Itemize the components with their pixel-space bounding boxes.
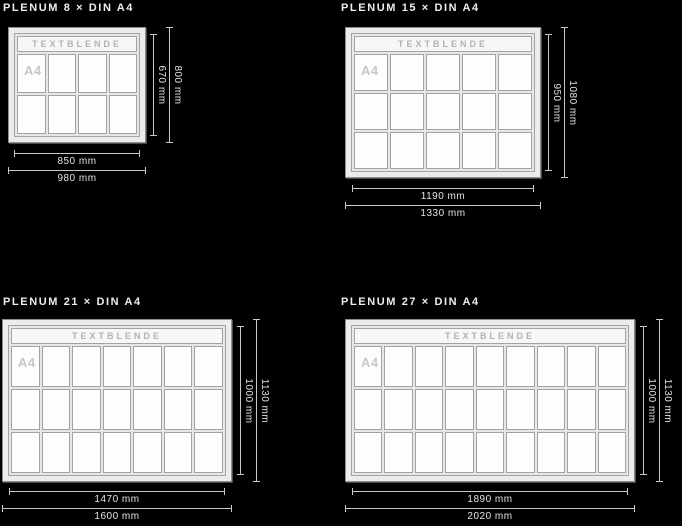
dimension-line-visible-height: 950 mm bbox=[548, 34, 549, 171]
a4-cell bbox=[354, 132, 388, 169]
a4-label: A4 bbox=[24, 63, 42, 78]
a4-cell bbox=[415, 389, 443, 430]
dimension-label: 1000 mm bbox=[243, 378, 254, 423]
a4-cell bbox=[390, 54, 424, 91]
panel-title-plenum-15: PLENUM 15 × DIN A4 bbox=[341, 2, 480, 14]
a4-cell bbox=[445, 432, 473, 473]
a4-cell bbox=[78, 54, 107, 93]
a4-cell bbox=[445, 346, 473, 387]
a4-label: A4 bbox=[361, 63, 379, 78]
dimension-label: 1890 mm bbox=[467, 494, 512, 505]
a4-cell bbox=[164, 389, 193, 430]
showcase-board-plenum-27: TEXTBLENDE A4 bbox=[345, 319, 635, 482]
a4-cell bbox=[133, 346, 162, 387]
a4-cell bbox=[103, 432, 132, 473]
a4-grid: A4 bbox=[11, 346, 223, 473]
a4-cell bbox=[78, 95, 107, 134]
a4-cell bbox=[42, 432, 71, 473]
board-inner-frame: TEXTBLENDE A4 bbox=[351, 33, 535, 172]
dimension-line-outer-height: 1080 mm bbox=[564, 27, 565, 178]
a4-grid: A4 bbox=[354, 346, 626, 473]
a4-cell bbox=[42, 346, 71, 387]
a4-cell bbox=[506, 432, 534, 473]
dimension-line-visible-width: 1470 mm bbox=[9, 491, 225, 492]
a4-cell bbox=[194, 346, 223, 387]
dimension-line-outer-width: 1330 mm bbox=[345, 205, 541, 206]
a4-cell bbox=[72, 389, 101, 430]
dimension-label: 670 mm bbox=[156, 65, 167, 104]
dimension-label: 1080 mm bbox=[567, 80, 578, 125]
panel-title-plenum-21: PLENUM 21 × DIN A4 bbox=[3, 296, 142, 308]
a4-cell bbox=[498, 93, 532, 130]
textblende-label: TEXTBLENDE bbox=[398, 39, 488, 49]
panel-title-plenum-27: PLENUM 27 × DIN A4 bbox=[341, 296, 480, 308]
a4-cell bbox=[11, 389, 40, 430]
a4-cell: A4 bbox=[354, 346, 382, 387]
dimension-label: 1470 mm bbox=[94, 494, 139, 505]
a4-cell bbox=[537, 432, 565, 473]
a4-cell bbox=[194, 389, 223, 430]
dimension-label: 1000 mm bbox=[646, 378, 657, 423]
showcase-board-plenum-8: TEXTBLENDE A4 bbox=[8, 27, 146, 143]
dimension-line-visible-width: 1190 mm bbox=[352, 188, 534, 189]
a4-cell bbox=[426, 132, 460, 169]
dimension-label: 2020 mm bbox=[467, 511, 512, 522]
a4-cell bbox=[103, 346, 132, 387]
a4-cell bbox=[384, 389, 412, 430]
dimension-label: 1130 mm bbox=[662, 378, 673, 422]
dimension-label: 1130 mm bbox=[259, 378, 270, 422]
dimension-label: 800 mm bbox=[172, 65, 183, 104]
a4-cell bbox=[72, 346, 101, 387]
dimension-label: 1330 mm bbox=[420, 208, 465, 219]
a4-cell bbox=[354, 93, 388, 130]
a4-cell bbox=[164, 432, 193, 473]
a4-cell bbox=[103, 389, 132, 430]
a4-cell bbox=[567, 389, 595, 430]
dimension-line-visible-height: 1000 mm bbox=[240, 326, 241, 475]
a4-cell bbox=[390, 93, 424, 130]
dimension-line-outer-height: 800 mm bbox=[169, 27, 170, 143]
board-inner-frame: TEXTBLENDE A4 bbox=[351, 325, 629, 476]
a4-cell bbox=[498, 132, 532, 169]
a4-cell bbox=[567, 432, 595, 473]
a4-cell bbox=[506, 389, 534, 430]
panel-title-plenum-8: PLENUM 8 × DIN A4 bbox=[3, 2, 134, 14]
dimension-label: 950 mm bbox=[551, 83, 562, 122]
a4-cell bbox=[445, 389, 473, 430]
a4-cell bbox=[462, 54, 496, 91]
dimension-line-outer-height: 1130 mm bbox=[256, 319, 257, 482]
a4-cell bbox=[476, 389, 504, 430]
textblende-bar: TEXTBLENDE bbox=[354, 36, 532, 52]
dimension-line-visible-width: 1890 mm bbox=[352, 491, 628, 492]
dimension-line-outer-width: 980 mm bbox=[8, 170, 146, 171]
dimension-label: 850 mm bbox=[57, 156, 96, 167]
a4-cell bbox=[109, 54, 138, 93]
a4-cell bbox=[194, 432, 223, 473]
dimension-line-outer-width: 1600 mm bbox=[2, 508, 232, 509]
showcase-board-plenum-15: TEXTBLENDE A4 bbox=[345, 27, 541, 178]
a4-cell bbox=[426, 54, 460, 91]
a4-cell bbox=[42, 389, 71, 430]
a4-cell: A4 bbox=[354, 54, 388, 91]
a4-cell bbox=[164, 346, 193, 387]
a4-cell bbox=[567, 346, 595, 387]
a4-cell bbox=[598, 432, 626, 473]
a4-cell bbox=[48, 95, 77, 134]
a4-cell bbox=[476, 432, 504, 473]
a4-cell bbox=[390, 132, 424, 169]
a4-cell bbox=[17, 95, 46, 134]
a4-cell: A4 bbox=[11, 346, 40, 387]
a4-cell bbox=[426, 93, 460, 130]
a4-cell bbox=[11, 432, 40, 473]
a4-cell bbox=[415, 346, 443, 387]
a4-cell bbox=[384, 346, 412, 387]
a4-grid: A4 bbox=[354, 54, 532, 169]
showcase-board-plenum-21: TEXTBLENDE A4 bbox=[2, 319, 232, 482]
a4-label: A4 bbox=[18, 355, 36, 370]
a4-label: A4 bbox=[361, 355, 379, 370]
a4-cell bbox=[537, 389, 565, 430]
a4-cell bbox=[537, 346, 565, 387]
dimension-line-outer-height: 1130 mm bbox=[659, 319, 660, 482]
a4-cell: A4 bbox=[17, 54, 46, 93]
a4-cell bbox=[506, 346, 534, 387]
a4-cell bbox=[354, 389, 382, 430]
a4-grid: A4 bbox=[17, 54, 137, 134]
a4-cell bbox=[462, 93, 496, 130]
a4-cell bbox=[133, 432, 162, 473]
a4-cell bbox=[415, 432, 443, 473]
textblende-bar: TEXTBLENDE bbox=[17, 36, 137, 52]
dimension-label: 980 mm bbox=[57, 173, 96, 184]
textblende-label: TEXTBLENDE bbox=[32, 39, 122, 49]
a4-cell bbox=[133, 389, 162, 430]
textblende-label: TEXTBLENDE bbox=[445, 331, 535, 341]
dimension-line-outer-width: 2020 mm bbox=[345, 508, 635, 509]
a4-cell bbox=[384, 432, 412, 473]
dimension-label: 1600 mm bbox=[94, 511, 139, 522]
textblende-bar: TEXTBLENDE bbox=[354, 328, 626, 344]
textblende-bar: TEXTBLENDE bbox=[11, 328, 223, 344]
dimension-label: 1190 mm bbox=[421, 191, 465, 202]
a4-cell bbox=[498, 54, 532, 91]
textblende-label: TEXTBLENDE bbox=[72, 331, 162, 341]
board-inner-frame: TEXTBLENDE A4 bbox=[14, 33, 140, 137]
a4-cell bbox=[354, 432, 382, 473]
a4-cell bbox=[476, 346, 504, 387]
dimension-line-visible-height: 670 mm bbox=[153, 34, 154, 136]
a4-cell bbox=[598, 346, 626, 387]
a4-cell bbox=[48, 54, 77, 93]
board-inner-frame: TEXTBLENDE A4 bbox=[8, 325, 226, 476]
a4-cell bbox=[72, 432, 101, 473]
a4-cell bbox=[462, 132, 496, 169]
a4-cell bbox=[598, 389, 626, 430]
a4-cell bbox=[109, 95, 138, 134]
dimension-line-visible-width: 850 mm bbox=[14, 153, 140, 154]
dimension-line-visible-height: 1000 mm bbox=[643, 326, 644, 475]
